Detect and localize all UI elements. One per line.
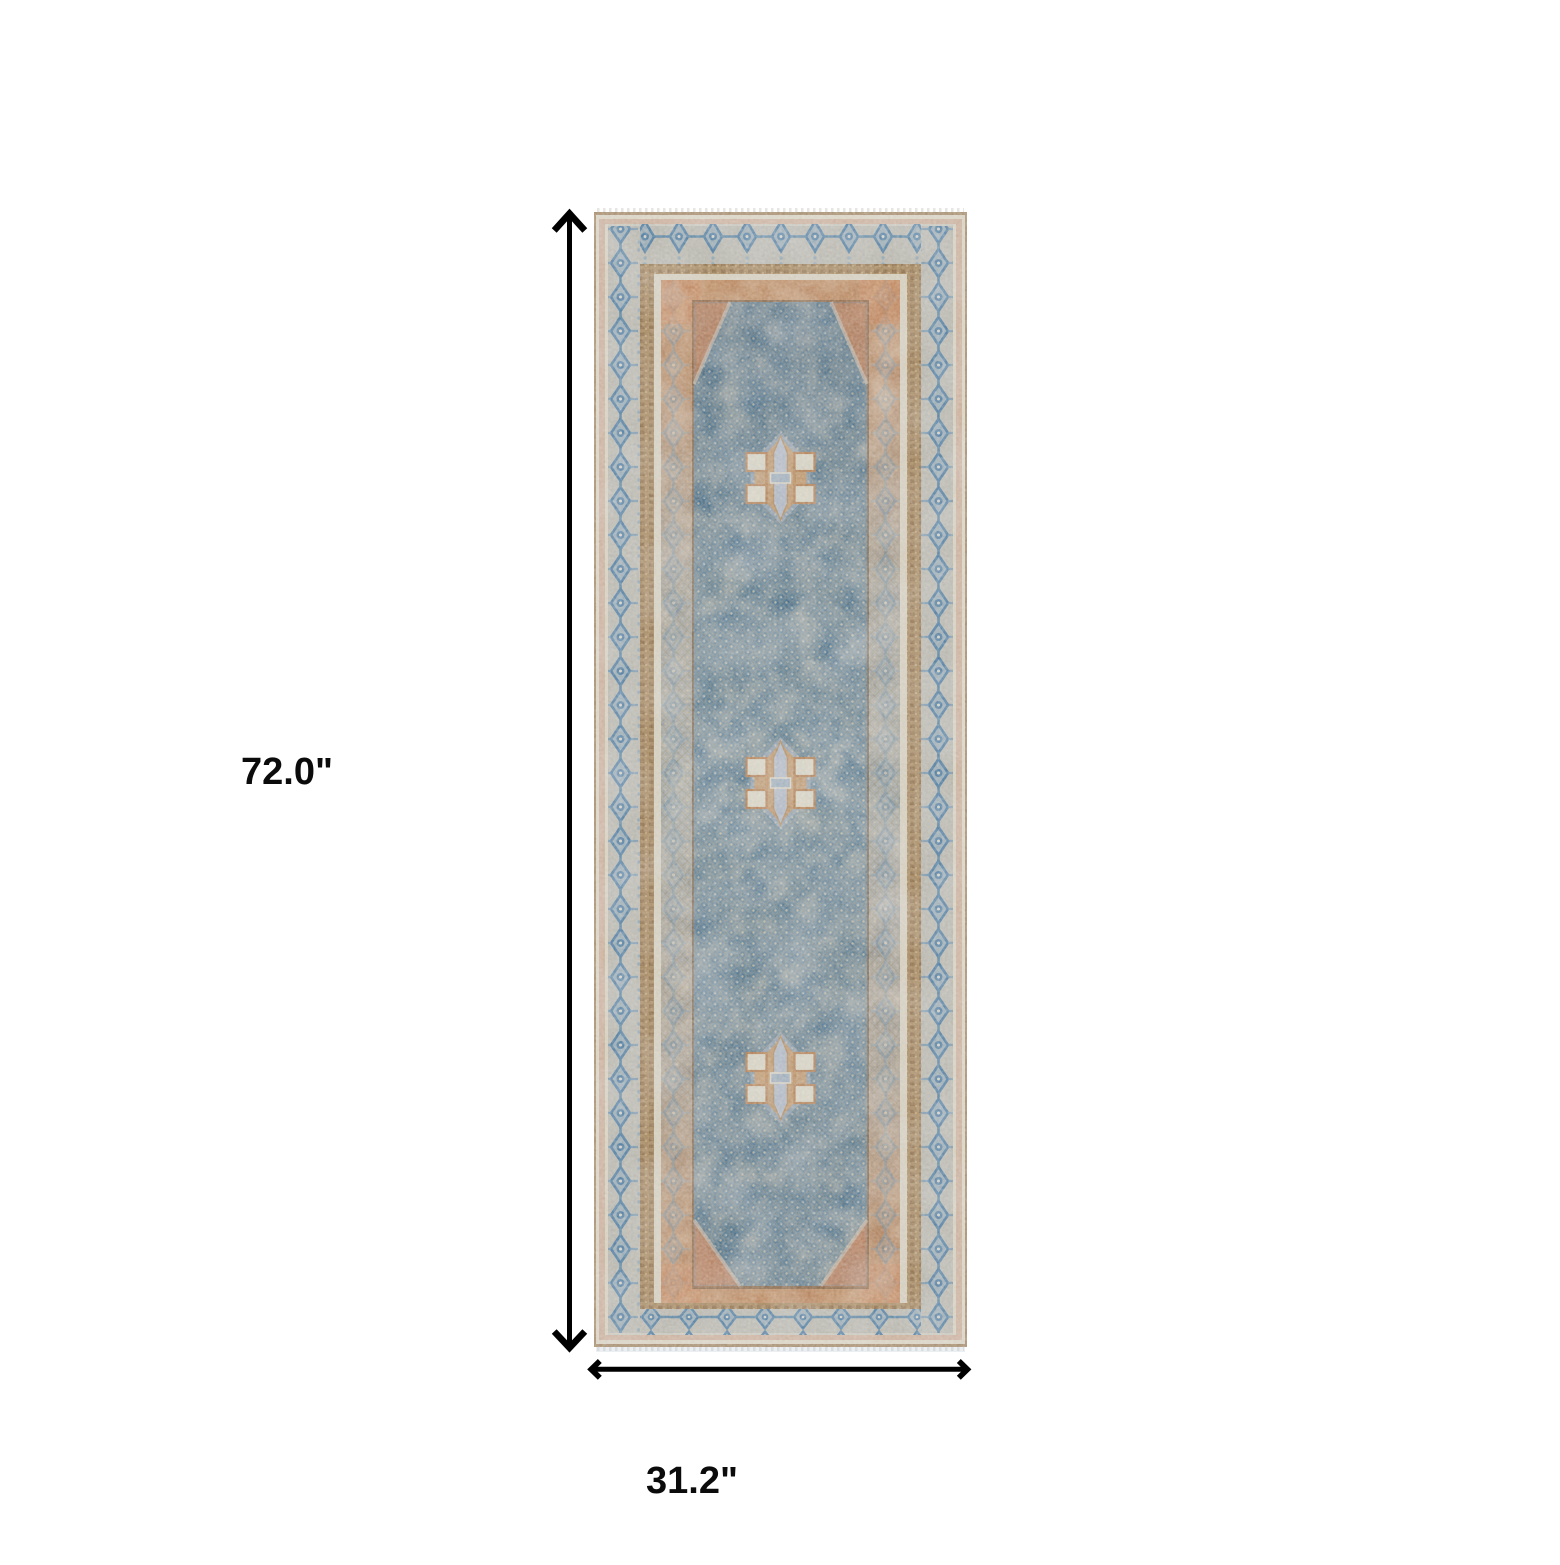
svg-text:31.2": 31.2" <box>646 1460 738 1502</box>
svg-text:72.0": 72.0" <box>241 751 333 793</box>
